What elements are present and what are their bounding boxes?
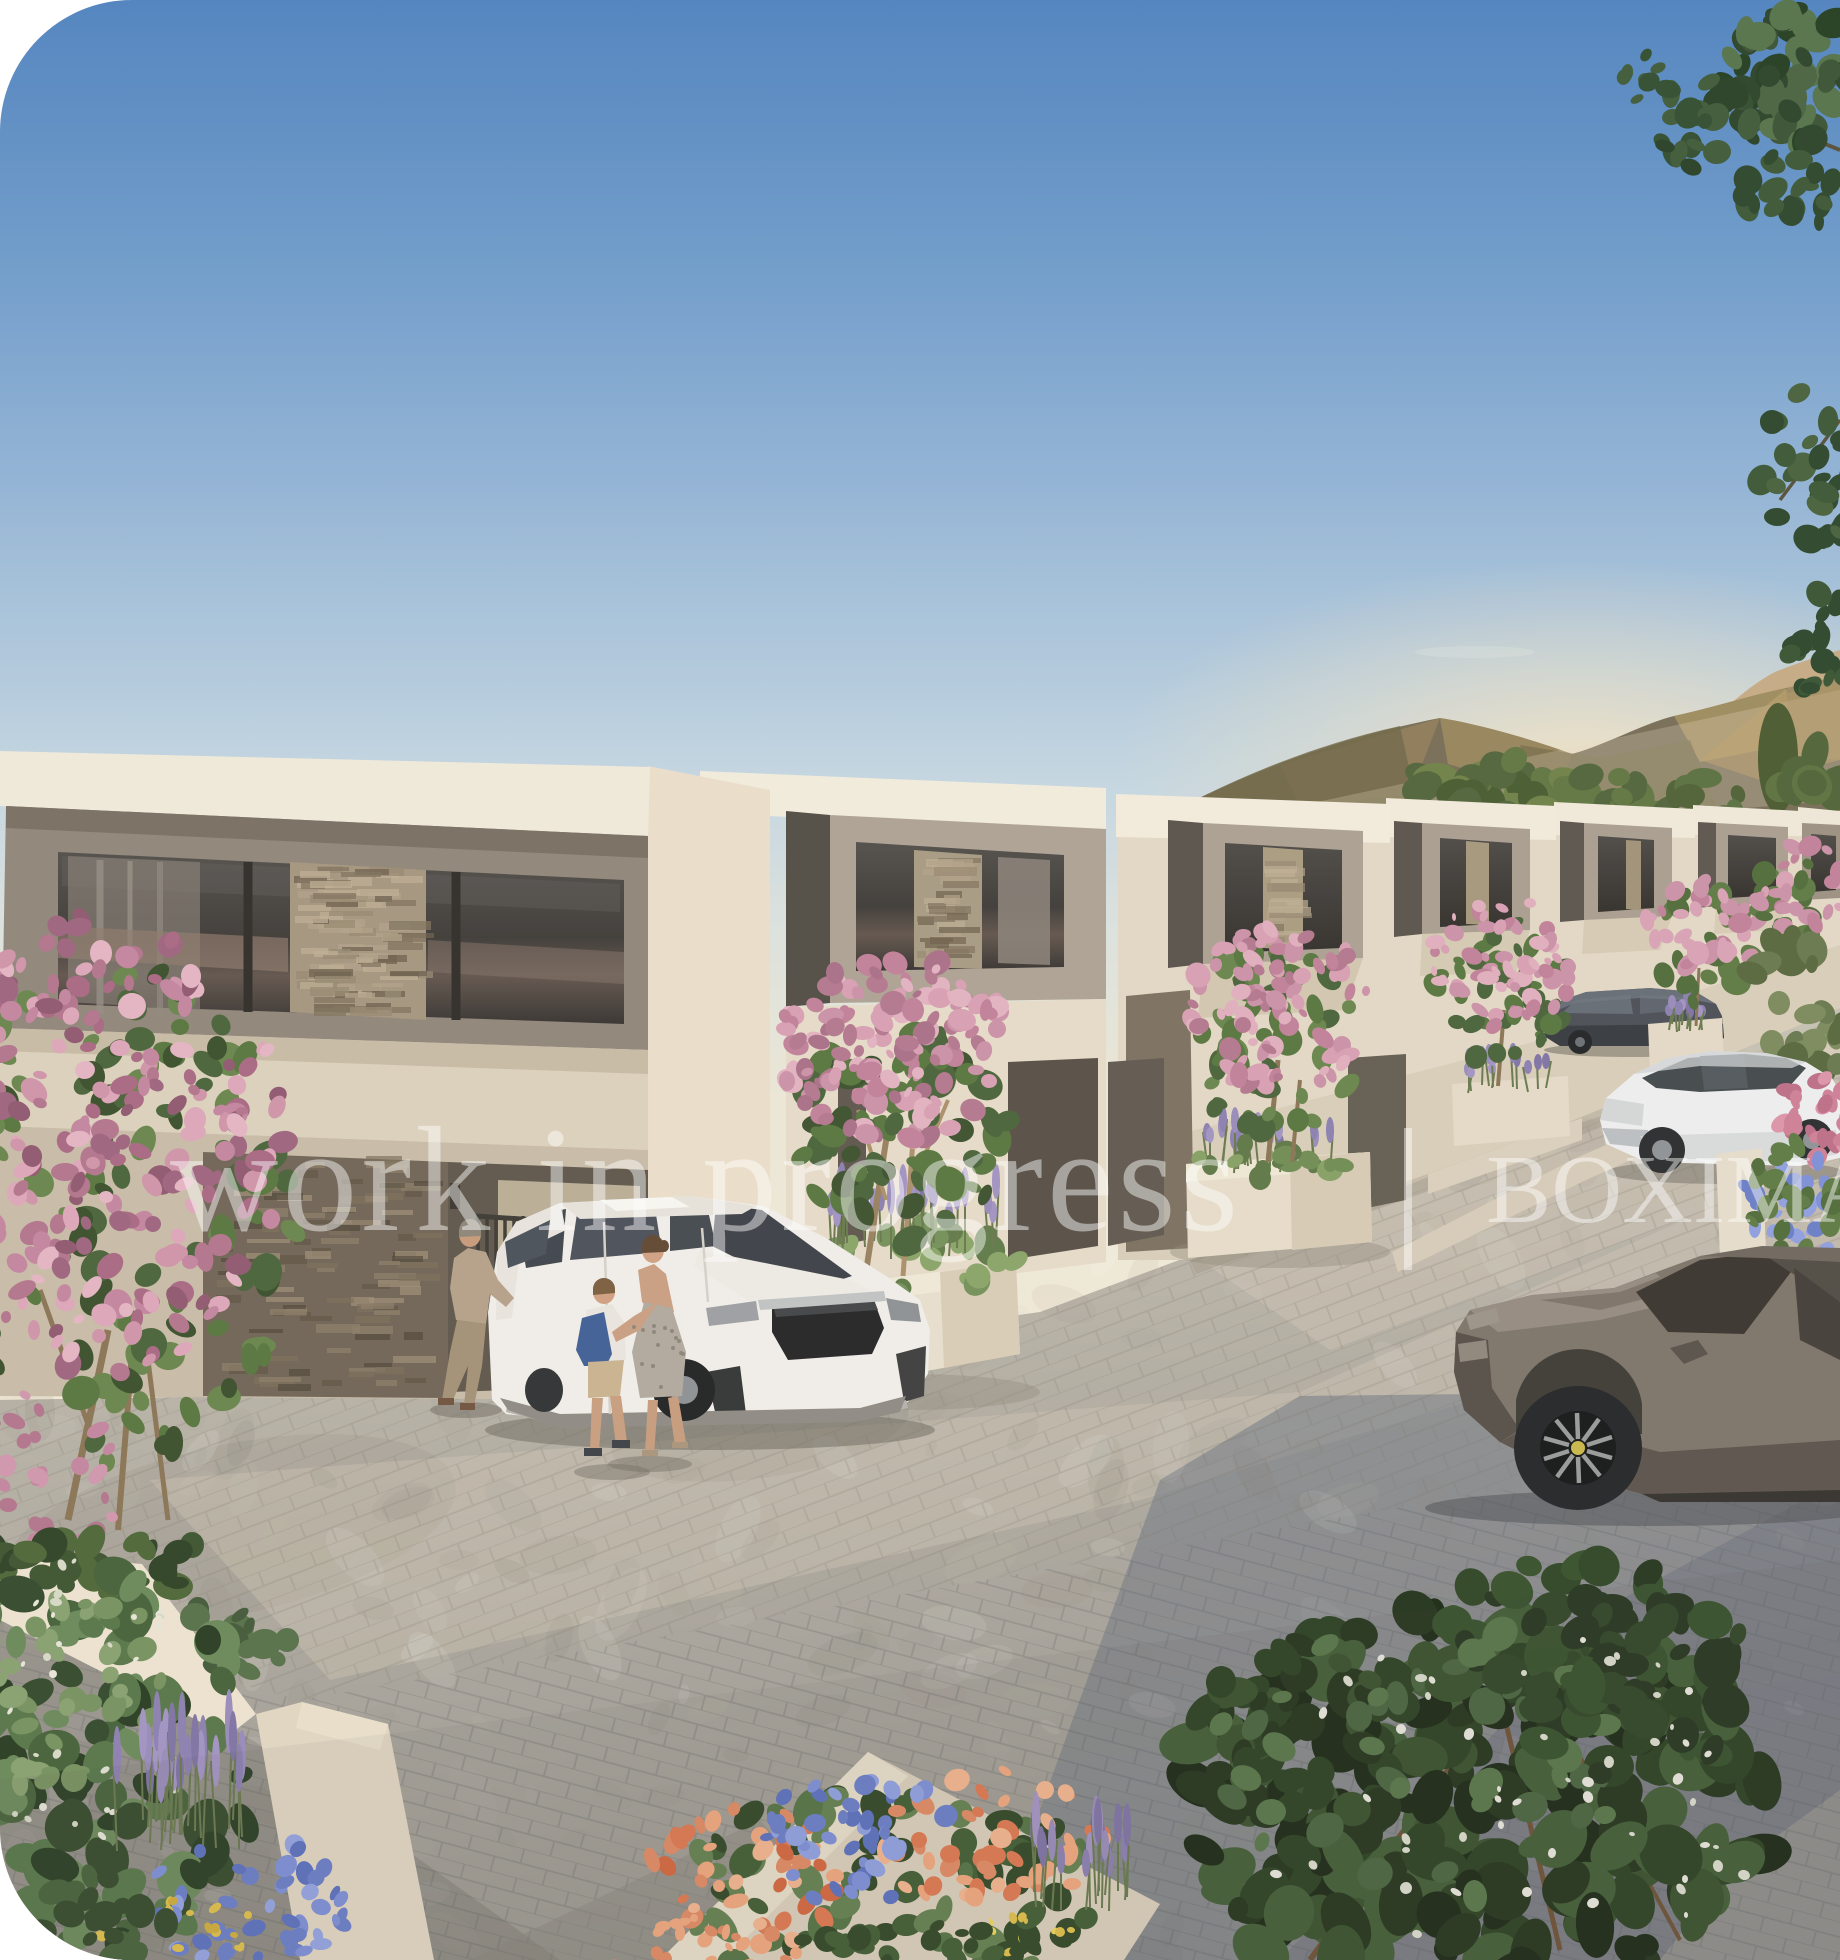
svg-text:BOXIMA: BOXIMA	[1486, 1136, 1840, 1244]
svg-text:work in progress: work in progress	[170, 1097, 1242, 1263]
